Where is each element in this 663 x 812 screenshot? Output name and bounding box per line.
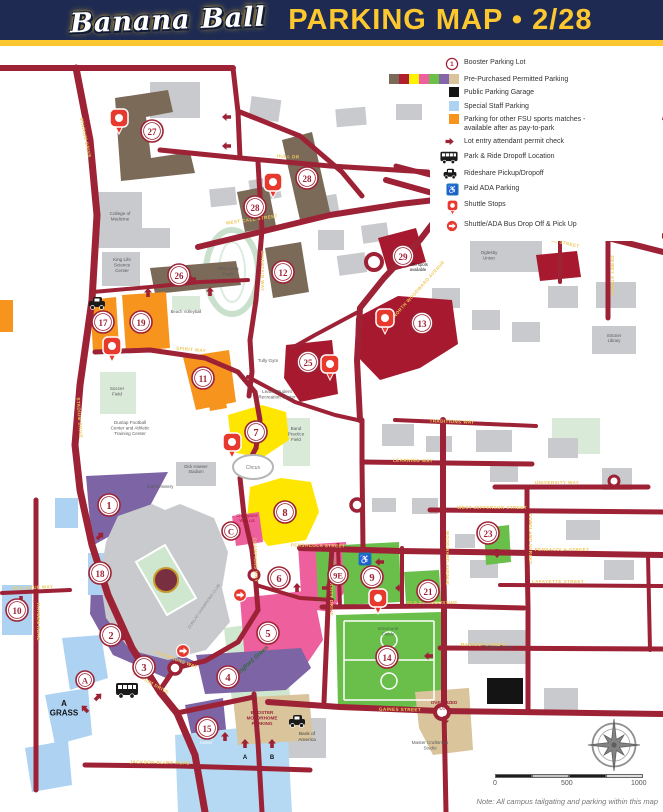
place-label: Bank ofAmerica <box>298 731 316 743</box>
icon-part: 21 <box>423 587 433 597</box>
icon-part: 29 <box>398 252 408 262</box>
road <box>648 555 650 650</box>
shuttle-stop-pin-icon <box>103 337 121 362</box>
icon-part <box>450 153 453 156</box>
beach-volleyball <box>172 296 200 310</box>
icon-part <box>381 314 389 322</box>
lot-badge-13: 13 <box>411 312 433 334</box>
icon-part: 28 <box>250 203 260 213</box>
building <box>544 688 578 710</box>
place-label: College ofMedicine <box>110 211 131 222</box>
place-label: Beach Volleyball <box>171 309 202 314</box>
building <box>382 424 414 446</box>
color-swatch <box>429 74 439 84</box>
street-label: COPELAND STREET <box>528 513 533 564</box>
street-label: WOODWARD AVENUE <box>445 531 450 586</box>
lot-badge-18: 18 <box>89 562 111 584</box>
road <box>362 420 363 548</box>
icon-part <box>269 178 277 186</box>
legend-item-label: Parking for other FSU sports matches - a… <box>464 114 604 133</box>
legend: 1Booster Parking LotPre-Purchased Permit… <box>430 55 662 241</box>
icon-part: 1 <box>450 61 454 68</box>
icon-part <box>128 685 132 689</box>
lot-badge-10: 10 <box>6 599 28 621</box>
lot-badge-23: 23 <box>477 522 499 544</box>
building <box>472 310 500 330</box>
icon-part <box>450 203 455 208</box>
place-label: Tully Gym <box>258 358 279 363</box>
icon-part <box>228 438 236 446</box>
legend-item: ♿Paid ADA Parking <box>430 183 662 196</box>
scale-segment <box>532 774 569 778</box>
icon-part: 25 <box>303 358 313 368</box>
icon-part: ♿ <box>447 185 457 195</box>
scale-label: 500 <box>561 780 573 787</box>
building <box>335 107 366 128</box>
icon-part: 23 <box>483 529 493 539</box>
building <box>372 498 396 512</box>
icon-part <box>452 175 455 178</box>
icon-part <box>293 583 301 592</box>
color-swatch <box>419 74 429 84</box>
icon-part: 15 <box>202 724 212 734</box>
building <box>455 534 475 548</box>
icon-part <box>454 153 456 156</box>
dropoff-icon <box>445 219 459 233</box>
color-swatch <box>409 74 419 84</box>
legend-item-label: Lot entry attendant permit check <box>464 136 564 146</box>
lot-badge-1: 1 <box>98 494 120 516</box>
icon-part <box>115 114 123 122</box>
lot-badge-15: 15 <box>196 717 218 739</box>
building <box>209 187 237 208</box>
road <box>322 606 524 608</box>
legend-item: Shuttle Stops <box>430 199 662 216</box>
scale-segment <box>495 774 532 778</box>
lot-13-area <box>355 296 458 380</box>
building <box>548 438 578 458</box>
icon-part <box>222 142 231 150</box>
permit-arrow-icon <box>446 138 454 145</box>
scale-label: 0 <box>493 780 497 787</box>
lot-badge-3: 3 <box>133 656 155 678</box>
loop-road <box>366 254 382 270</box>
street-label: PENSACOLA STREET <box>535 547 589 552</box>
car-icon <box>441 168 459 180</box>
place-label: Leach StudentRecreation Center <box>258 389 296 400</box>
dropoff-icon <box>446 221 457 232</box>
street-label: JACKSON BLUFF ROAD <box>130 759 191 765</box>
icon-part: 5 <box>265 629 270 640</box>
legend-item: Pre-Purchased Permitted Parking <box>430 74 662 84</box>
scale-label: 1000 <box>631 780 647 787</box>
lot-badge-2: 2 <box>100 624 122 646</box>
icon-part <box>446 153 449 156</box>
header: Banana Ball PARKING MAP • 2/28 <box>0 0 663 40</box>
scale-segment <box>569 774 606 778</box>
icon-part: 9E <box>333 571 343 580</box>
building <box>490 466 518 482</box>
color-swatch <box>399 74 409 84</box>
lot-badge-5: 5 <box>257 622 279 644</box>
icon-part: ♿ <box>359 553 370 564</box>
place-label: A <box>243 755 248 761</box>
lot-badge-28: 28 <box>244 196 266 218</box>
street-label: HAYDEN ROAD <box>36 603 41 641</box>
permit-arrow-icon <box>443 136 459 147</box>
lot-badge-12: 12 <box>272 261 294 283</box>
lot-badge-26: 26 <box>168 264 190 286</box>
icon-part <box>119 694 123 698</box>
orange-lot-west <box>0 300 13 332</box>
shuttle-stop-pin-icon <box>369 589 387 614</box>
legend-item-label: Shuttle/ADA Bus Drop Off & Pick Up <box>464 219 577 229</box>
lot-badge-c: C <box>222 522 240 540</box>
lot-badge-6: 6 <box>268 567 290 589</box>
color-swatch <box>439 74 449 84</box>
icon-part <box>92 691 104 703</box>
parking-map-page: Banana Ball PARKING MAP • 2/28 STADIUM D… <box>0 0 663 812</box>
icon-part: 12 <box>278 268 288 278</box>
legend-item-label: Public Parking Garage <box>464 87 534 97</box>
entry-arrow-icon <box>222 142 231 150</box>
ada-parking-icon: ♿ <box>359 553 372 566</box>
lot-badge-19: 19 <box>130 311 152 333</box>
entry-arrow-icon <box>293 583 301 592</box>
legend-item: Park & Ride Dropoff Location <box>430 151 662 165</box>
icon-part <box>448 170 452 172</box>
lot-badge-4: 4 <box>217 666 239 688</box>
legend-item-label: Park & Ride Dropoff Location <box>464 151 555 161</box>
icon-part: 9 <box>369 573 374 584</box>
building <box>337 252 368 276</box>
bus-icon <box>440 151 457 163</box>
lot-badge-9e: 9E <box>328 565 348 585</box>
compass-rose <box>586 717 642 773</box>
street-label: GAINES STREET <box>379 707 421 713</box>
icon-part: 18 <box>95 569 105 579</box>
road <box>527 487 528 712</box>
scale-bar: 05001000 <box>495 774 643 790</box>
place-label: Dunlap FootballCenter and AthleticTraini… <box>111 420 151 436</box>
lot-badge-27: 27 <box>141 120 163 142</box>
ada-icon: ♿ <box>446 183 459 196</box>
legend-square-icon <box>449 114 459 124</box>
place-label: ChampionsWay Lot <box>236 513 257 523</box>
street-label: WEST JEFFERSON STREET <box>457 505 527 510</box>
place-label: StrozierLibrary <box>607 333 622 343</box>
place-label: Sod Cemetery <box>147 484 175 489</box>
lot-badge-8: 8 <box>274 501 296 523</box>
legend-item: Public Parking Garage <box>430 87 662 97</box>
icon-part <box>443 160 446 163</box>
icon-part <box>118 685 122 689</box>
icon-part <box>295 717 300 720</box>
icon-part <box>445 175 448 178</box>
lot-badge-11: 11 <box>192 367 214 389</box>
road <box>440 648 663 649</box>
car-icon <box>444 169 457 179</box>
staff-lot-west <box>55 498 78 528</box>
pin-icon <box>446 199 459 216</box>
icon-part <box>130 694 134 698</box>
icon-part <box>451 160 454 163</box>
street-label: HULL DR <box>277 153 300 159</box>
lot-badge-7: 7 <box>245 421 267 443</box>
building <box>318 230 344 250</box>
pensacola-circle <box>351 499 363 511</box>
street-label: LEARNING WAY <box>393 458 433 464</box>
icon-part <box>100 306 104 310</box>
icon-part: 7 <box>253 428 258 439</box>
banana-ball-logo: Banana Ball <box>70 1 267 39</box>
place-label: King LifeScienceCenter <box>113 257 131 273</box>
icon-part: C <box>228 526 234 536</box>
icon-part: 11 <box>199 374 208 384</box>
shuttle-stop-pin-icon <box>223 433 241 458</box>
legend-item: Parking for other FSU sports matches - a… <box>430 114 662 133</box>
road <box>443 420 444 712</box>
icon-part: 17 <box>98 318 108 328</box>
legend-item-label: Booster Parking Lot <box>464 57 525 67</box>
legend-item: Special Staff Parking <box>430 101 662 111</box>
building <box>548 286 578 308</box>
icon-part <box>446 138 454 145</box>
icon-part: 4 <box>225 673 231 684</box>
road <box>75 68 205 812</box>
shuttle-dropoff-icon <box>177 645 190 658</box>
compass-part <box>611 742 616 747</box>
icon-part <box>95 299 100 302</box>
icon-part: 19 <box>136 318 146 328</box>
street-label: LAFAYETTE STREET <box>532 579 584 584</box>
icon-part: 14 <box>382 653 392 663</box>
place-label: Circus <box>246 465 261 471</box>
icon-part <box>326 360 334 368</box>
street-label: DEWEY STREET <box>610 256 615 297</box>
header-gold-stripe <box>0 40 663 46</box>
building <box>566 520 600 540</box>
map-note: Note: All campus tailgating and parking … <box>477 797 658 806</box>
entry-arrow-icon <box>92 691 104 703</box>
south-stadium-circle <box>169 662 181 674</box>
ada-icon: ♿ <box>446 183 458 195</box>
legend-item-label: Pre-Purchased Permitted Parking <box>464 74 568 84</box>
icon-part: 2 <box>108 631 113 642</box>
entry-arrow-icon <box>222 113 231 121</box>
building <box>476 430 512 452</box>
icon-part <box>91 306 95 310</box>
place-label: CollegeTown <box>481 645 513 651</box>
shuttle-dropoff-icon <box>234 589 247 602</box>
page-title: PARKING MAP • 2/28 <box>288 4 592 37</box>
icon-part: 10 <box>12 606 22 616</box>
legend-item-label: Shuttle Stops <box>464 199 506 209</box>
building <box>426 436 452 452</box>
building <box>142 228 170 248</box>
legend-item: Shuttle/ADA Bus Drop Off & Pick Up <box>430 219 662 233</box>
icon-part <box>374 594 382 602</box>
icon-part <box>291 724 295 728</box>
legend-item: Rideshare Pickup/Dropoff <box>430 168 662 180</box>
lot-badge-25: 25 <box>297 351 319 373</box>
legend-square-icon <box>449 101 459 111</box>
seminole-logo <box>154 568 178 592</box>
icon-part: 3 <box>141 663 146 674</box>
icon-part: 6 <box>276 574 281 585</box>
icon-part: 8 <box>282 508 287 519</box>
icon-part <box>222 113 231 121</box>
street-label: PENSACOLA STREET <box>291 543 346 549</box>
building <box>604 560 634 580</box>
booster-badge-icon: 1 <box>446 58 457 69</box>
parking-color-swatches <box>388 74 464 84</box>
scale-segment <box>606 774 643 778</box>
building <box>596 282 636 308</box>
booster-badge-icon: 1 <box>445 57 459 71</box>
icon-part: 1 <box>106 501 111 512</box>
pin-icon <box>447 200 458 215</box>
lot-badge-a: A <box>76 671 94 689</box>
lot-badge-29: 29 <box>392 245 414 267</box>
street-label: CHIEFTAIN WAY <box>260 251 265 292</box>
icon-part: A <box>82 675 89 685</box>
university-circle <box>609 476 619 486</box>
road <box>500 585 663 586</box>
public-parking-garage <box>487 678 523 704</box>
icon-part <box>300 724 304 728</box>
icon-part <box>133 685 136 689</box>
street-label: TRADITIONS WAY <box>429 418 474 425</box>
color-swatch <box>449 74 459 84</box>
icon-part <box>123 685 127 689</box>
lot-a-area-3 <box>25 740 72 792</box>
legend-item: 1Booster Parking Lot <box>430 57 662 71</box>
legend-item-label: Paid ADA Parking <box>464 183 519 193</box>
icon-part: 27 <box>147 127 157 137</box>
lot-badge-9: 9 <box>361 566 383 588</box>
park-and-ride-bus-icon <box>116 683 138 698</box>
lot-badge-14: 14 <box>376 646 398 668</box>
legend-item: Lot entry attendant permit check <box>430 136 662 147</box>
place-label: B <box>270 755 275 761</box>
building <box>396 104 422 120</box>
road <box>444 712 446 812</box>
color-swatch <box>389 74 399 84</box>
legend-square-icon <box>449 87 459 97</box>
lot-badge-17: 17 <box>92 311 114 333</box>
icon-part <box>442 153 445 156</box>
bus-icon <box>439 151 459 165</box>
lot-badge-21: 21 <box>417 580 439 602</box>
legend-item-label: Rideshare Pickup/Dropoff <box>464 168 544 178</box>
street-label: UNIVERSITY WAY <box>535 480 579 485</box>
road <box>362 462 532 464</box>
legend-item-label: Special Staff Parking <box>464 101 529 111</box>
building <box>512 322 540 342</box>
road <box>430 510 663 512</box>
icon-part <box>108 342 116 350</box>
lot-badge-28: 28 <box>296 167 318 189</box>
icon-part: 13 <box>417 319 427 329</box>
icon-part: 26 <box>174 271 184 281</box>
icon-part: 28 <box>302 174 312 184</box>
